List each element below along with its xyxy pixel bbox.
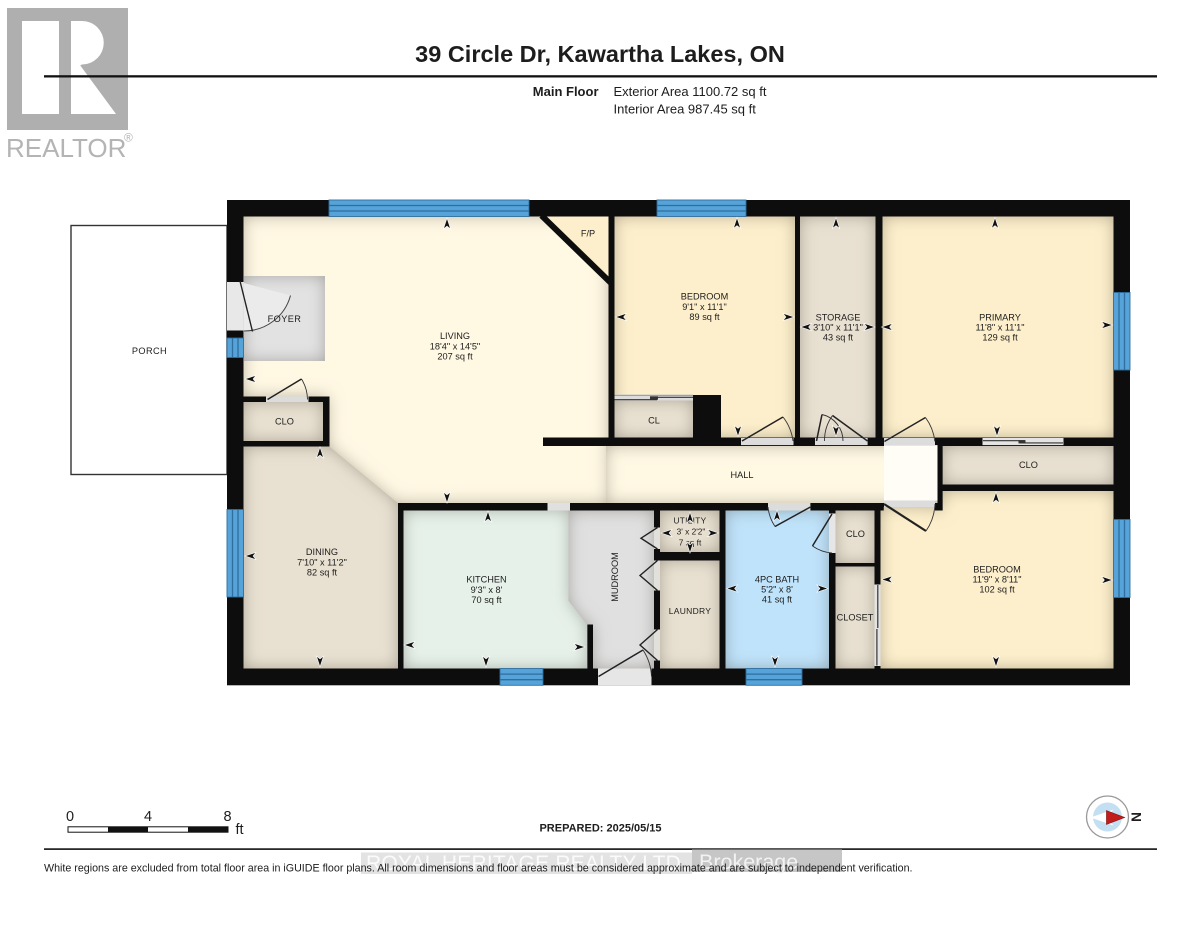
svg-text:8: 8 xyxy=(223,809,231,825)
svg-text:Interior Area 987.45 sq ft: Interior Area 987.45 sq ft xyxy=(614,102,757,117)
svg-text:39 Circle Dr, Kawartha Lakes,: 39 Circle Dr, Kawartha Lakes, ON xyxy=(415,41,785,67)
svg-text:PRIMARY: PRIMARY xyxy=(979,312,1021,322)
svg-text:BEDROOM: BEDROOM xyxy=(681,292,728,302)
svg-text:102 sq ft: 102 sq ft xyxy=(979,585,1015,595)
svg-text:Main Floor: Main Floor xyxy=(533,84,599,99)
svg-text:9'1" x 11'1": 9'1" x 11'1" xyxy=(682,302,727,312)
svg-text:F/P: F/P xyxy=(581,229,595,239)
svg-text:STORAGE: STORAGE xyxy=(816,312,861,322)
svg-text:®: ® xyxy=(124,131,133,145)
svg-text:KITCHEN: KITCHEN xyxy=(466,575,506,585)
svg-text:PORCH: PORCH xyxy=(132,346,167,356)
svg-text:18'4" x 14'5": 18'4" x 14'5" xyxy=(430,341,480,351)
svg-text:ft: ft xyxy=(236,822,244,838)
svg-text:LAUNDRY: LAUNDRY xyxy=(669,606,712,616)
svg-text:4: 4 xyxy=(144,809,152,825)
svg-text:7'10" x 11'2": 7'10" x 11'2" xyxy=(297,557,347,567)
svg-text:11'9" x 8'11": 11'9" x 8'11" xyxy=(972,575,1021,585)
svg-text:PREPARED: 2025/05/15: PREPARED: 2025/05/15 xyxy=(539,823,661,835)
svg-text:FOYER: FOYER xyxy=(268,314,302,324)
svg-text:4PC BATH: 4PC BATH xyxy=(755,575,799,585)
svg-text:11'8" x 11'1": 11'8" x 11'1" xyxy=(975,323,1024,333)
svg-text:70 sq ft: 70 sq ft xyxy=(471,595,502,605)
svg-text:3' x 2'2": 3' x 2'2" xyxy=(677,527,706,537)
svg-text:89 sq ft: 89 sq ft xyxy=(689,312,720,322)
svg-text:3'10" x 11'1": 3'10" x 11'1" xyxy=(813,323,863,333)
svg-text:DINING: DINING xyxy=(306,547,338,557)
svg-text:LIVING: LIVING xyxy=(440,331,470,341)
svg-text:43 sq ft: 43 sq ft xyxy=(823,333,854,343)
svg-text:0: 0 xyxy=(66,809,74,825)
svg-text:MUDROOM: MUDROOM xyxy=(610,552,620,602)
svg-text:9'3" x 8': 9'3" x 8' xyxy=(471,585,503,595)
svg-text:CLO: CLO xyxy=(1019,460,1038,470)
svg-text:CLO: CLO xyxy=(275,417,294,427)
svg-text:BEDROOM: BEDROOM xyxy=(973,565,1020,575)
svg-text:82 sq ft: 82 sq ft xyxy=(307,568,338,578)
svg-text:CL: CL xyxy=(648,416,660,426)
svg-text:Exterior Area 1100.72 sq ft: Exterior Area 1100.72 sq ft xyxy=(614,84,767,99)
svg-text:CLO: CLO xyxy=(846,529,865,539)
svg-text:REALTOR: REALTOR xyxy=(6,133,126,163)
svg-text:CLOSET: CLOSET xyxy=(837,613,874,623)
svg-text:41 sq ft: 41 sq ft xyxy=(762,595,793,605)
svg-text:N: N xyxy=(1129,812,1144,822)
svg-text:207 sq ft: 207 sq ft xyxy=(437,352,473,362)
svg-text:129 sq ft: 129 sq ft xyxy=(982,333,1018,343)
svg-text:White regions are excluded fro: White regions are excluded from total fl… xyxy=(44,863,913,875)
svg-text:HALL: HALL xyxy=(731,470,754,480)
svg-text:5'2" x 8': 5'2" x 8' xyxy=(761,585,793,595)
